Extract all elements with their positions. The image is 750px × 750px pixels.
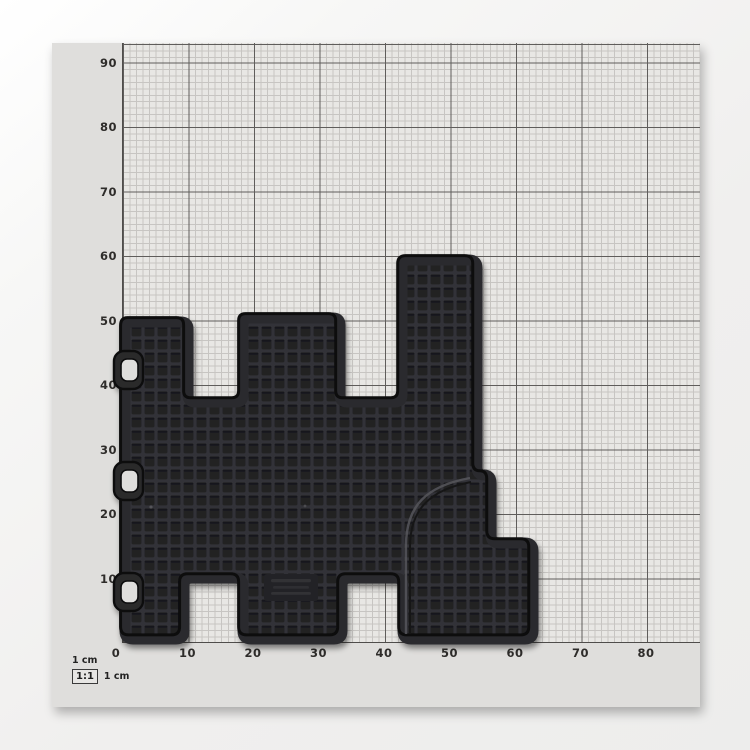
surface-speck	[149, 505, 152, 508]
embossed-label	[264, 574, 318, 601]
fixing-hook-top	[114, 351, 143, 389]
fixing-hook-bottom	[114, 573, 143, 611]
product-photo: 908070605040302010 01020304050607080	[0, 0, 750, 750]
floor-mat-svg	[0, 0, 750, 750]
unit-label-side: 1 cm	[104, 671, 129, 682]
scale-legend: 1 cm 1:1 1 cm	[72, 655, 129, 684]
scale-ratio-badge: 1:1	[72, 669, 98, 684]
surface-speck	[304, 505, 307, 508]
fixing-hook-middle	[114, 462, 143, 500]
unit-label-top: 1 cm	[72, 655, 129, 666]
